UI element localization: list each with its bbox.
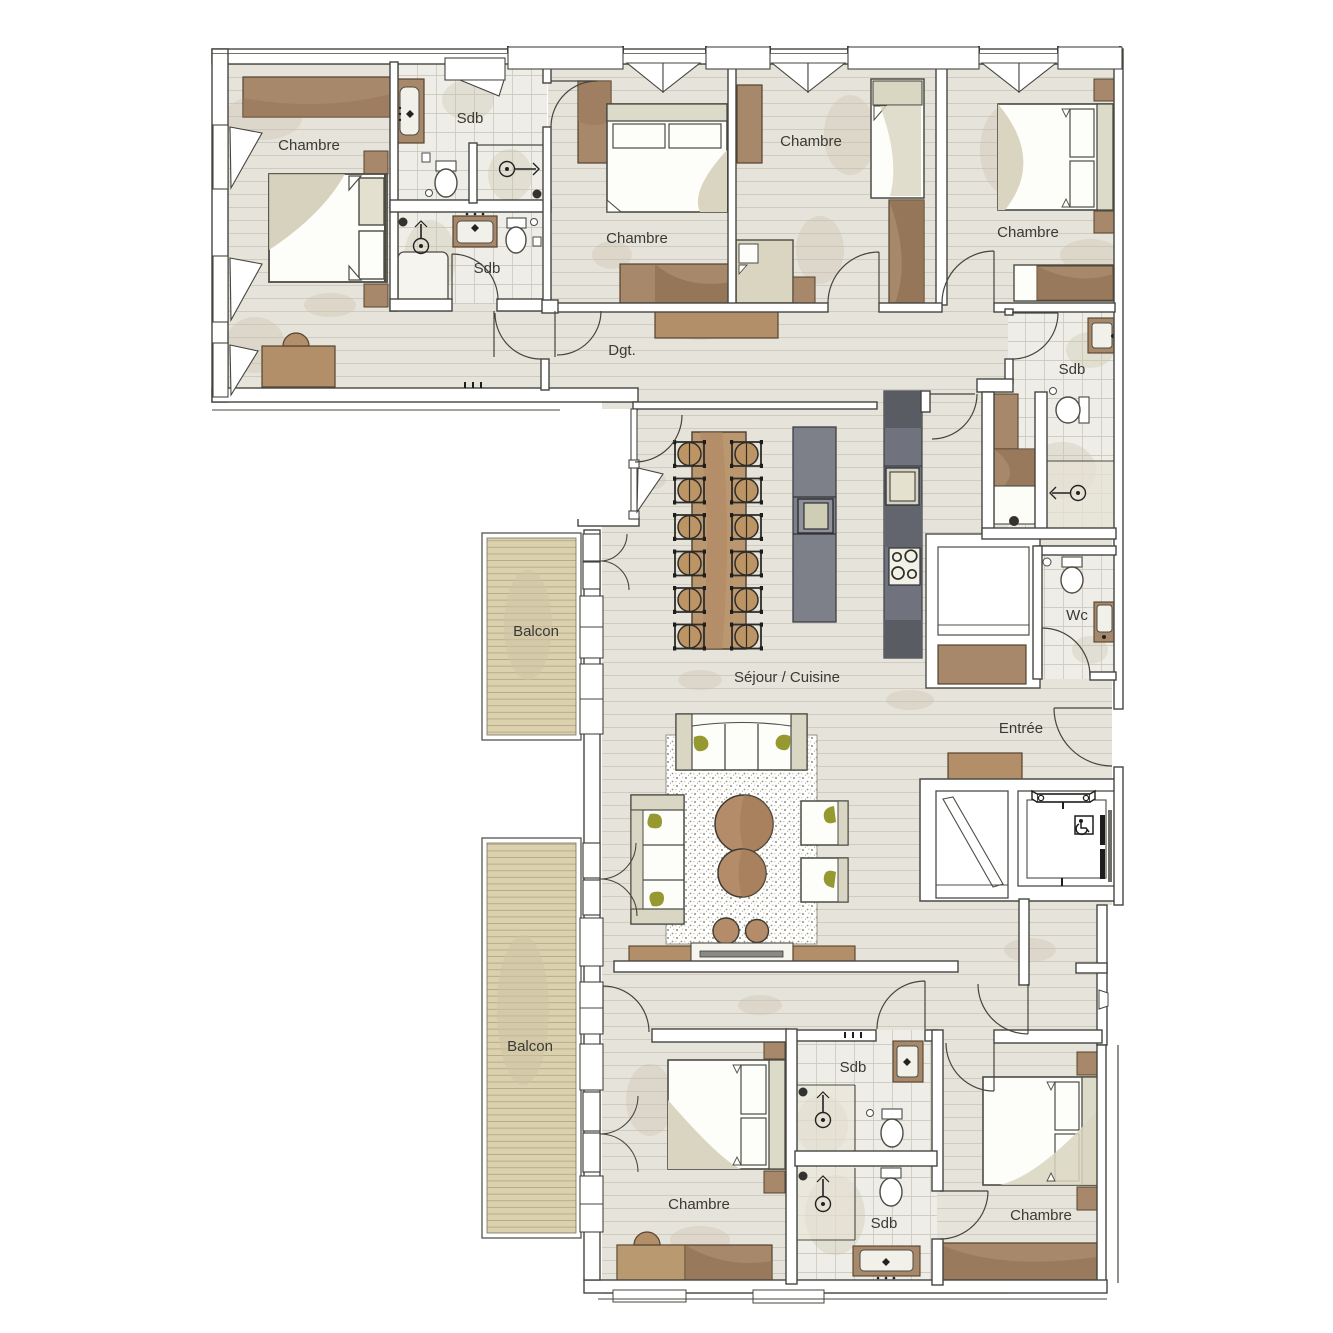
svg-text:Chambre: Chambre [606,230,668,247]
svg-text:Sdb: Sdb [840,1059,867,1076]
svg-text:Chambre: Chambre [997,224,1059,241]
svg-text:Wc: Wc [1066,607,1088,624]
svg-text:Chambre: Chambre [780,133,842,150]
svg-text:Séjour / Cuisine: Séjour / Cuisine [734,669,840,686]
svg-text:Chambre: Chambre [668,1196,730,1213]
svg-text:Sdb: Sdb [871,1215,898,1232]
svg-text:Chambre: Chambre [1010,1207,1072,1224]
svg-text:Chambre: Chambre [278,137,340,154]
svg-text:Sdb: Sdb [474,260,501,277]
svg-text:Dgt.: Dgt. [608,342,636,359]
svg-text:Balcon: Balcon [507,1038,553,1055]
svg-text:Sdb: Sdb [1059,361,1086,378]
svg-text:Entrée: Entrée [999,720,1043,737]
svg-text:Balcon: Balcon [513,623,559,640]
svg-text:Sdb: Sdb [457,110,484,127]
